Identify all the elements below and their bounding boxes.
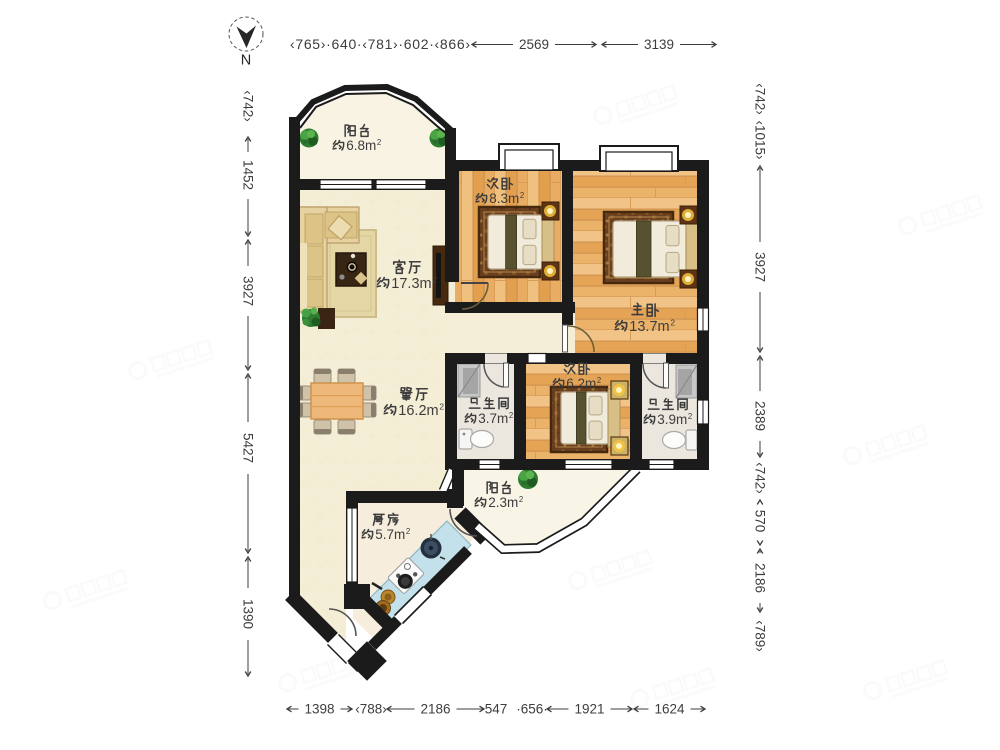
svg-text:2: 2 [597, 376, 601, 385]
svg-text:1921: 1921 [574, 702, 604, 717]
svg-text:‹765›·640·‹781›·602·‹866›: ‹765›·640·‹781›·602·‹866› [290, 36, 470, 52]
svg-text:547: 547 [485, 702, 508, 717]
svg-text:2: 2 [670, 318, 675, 328]
svg-text:17.3m: 17.3m [391, 276, 431, 292]
svg-text:2569: 2569 [519, 37, 549, 52]
svg-text:N: N [241, 53, 251, 69]
svg-text:3.7m: 3.7m [478, 411, 508, 426]
svg-text:1452: 1452 [241, 160, 256, 190]
svg-text:6.2m: 6.2m [566, 376, 596, 391]
svg-text:2: 2 [688, 412, 692, 421]
svg-text:6.8m: 6.8m [346, 138, 376, 153]
svg-text:2: 2 [519, 495, 523, 504]
svg-text:2186: 2186 [753, 563, 768, 593]
svg-text:3.9m: 3.9m [657, 412, 687, 427]
svg-text:3927: 3927 [241, 276, 256, 306]
svg-text:16.2m: 16.2m [398, 403, 438, 419]
svg-text:‹742›: ‹742› [753, 83, 768, 115]
svg-text:‹789›: ‹789› [753, 620, 768, 652]
svg-text:2: 2 [520, 191, 524, 200]
svg-text:8.3m: 8.3m [489, 191, 519, 206]
svg-text:2: 2 [509, 411, 513, 420]
svg-text:1398: 1398 [304, 702, 334, 717]
svg-text:‹788›: ‹788› [355, 702, 387, 717]
svg-text:2389: 2389 [753, 401, 768, 431]
svg-text:5427: 5427 [241, 433, 256, 463]
svg-text:2.3m: 2.3m [488, 495, 518, 510]
svg-text:5.7m: 5.7m [375, 527, 405, 542]
svg-text:2: 2 [432, 275, 437, 285]
svg-text:13.7m: 13.7m [629, 319, 669, 335]
svg-text:1390: 1390 [241, 599, 256, 629]
svg-text:‹742›: ‹742› [753, 462, 768, 494]
svg-text:3139: 3139 [644, 37, 674, 52]
svg-text:2: 2 [406, 527, 410, 536]
svg-text:·656·: ·656· [516, 702, 548, 717]
svg-text:3927: 3927 [753, 252, 768, 282]
svg-text:2: 2 [439, 402, 444, 412]
svg-text:1624: 1624 [654, 702, 685, 717]
svg-text:‹742›: ‹742› [241, 90, 256, 122]
svg-text:‹1015›: ‹1015› [753, 120, 768, 159]
svg-text:2: 2 [377, 138, 381, 147]
svg-text:570: 570 [753, 510, 768, 533]
svg-text:2186: 2186 [420, 702, 450, 717]
